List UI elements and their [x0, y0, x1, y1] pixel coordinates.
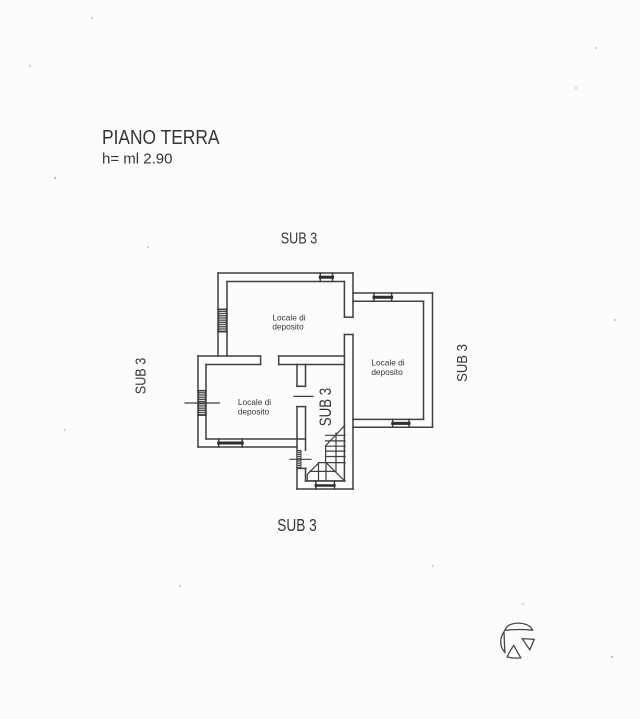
svg-text:SUB 3: SUB 3 [281, 231, 318, 248]
svg-text:SUB 3: SUB 3 [277, 515, 317, 535]
svg-text:SUB 3: SUB 3 [455, 344, 471, 382]
svg-text:h= ml 2.90: h= ml 2.90 [102, 151, 172, 168]
svg-text:SUB 3: SUB 3 [133, 358, 150, 394]
svg-text:deposito: deposito [371, 367, 403, 377]
svg-text:SUB 3: SUB 3 [317, 388, 335, 426]
svg-text:deposito: deposito [272, 321, 304, 331]
svg-text:PIANO TERRA: PIANO TERRA [102, 126, 220, 149]
svg-text:deposito: deposito [238, 406, 270, 416]
svg-text:Locale di: Locale di [371, 358, 404, 368]
